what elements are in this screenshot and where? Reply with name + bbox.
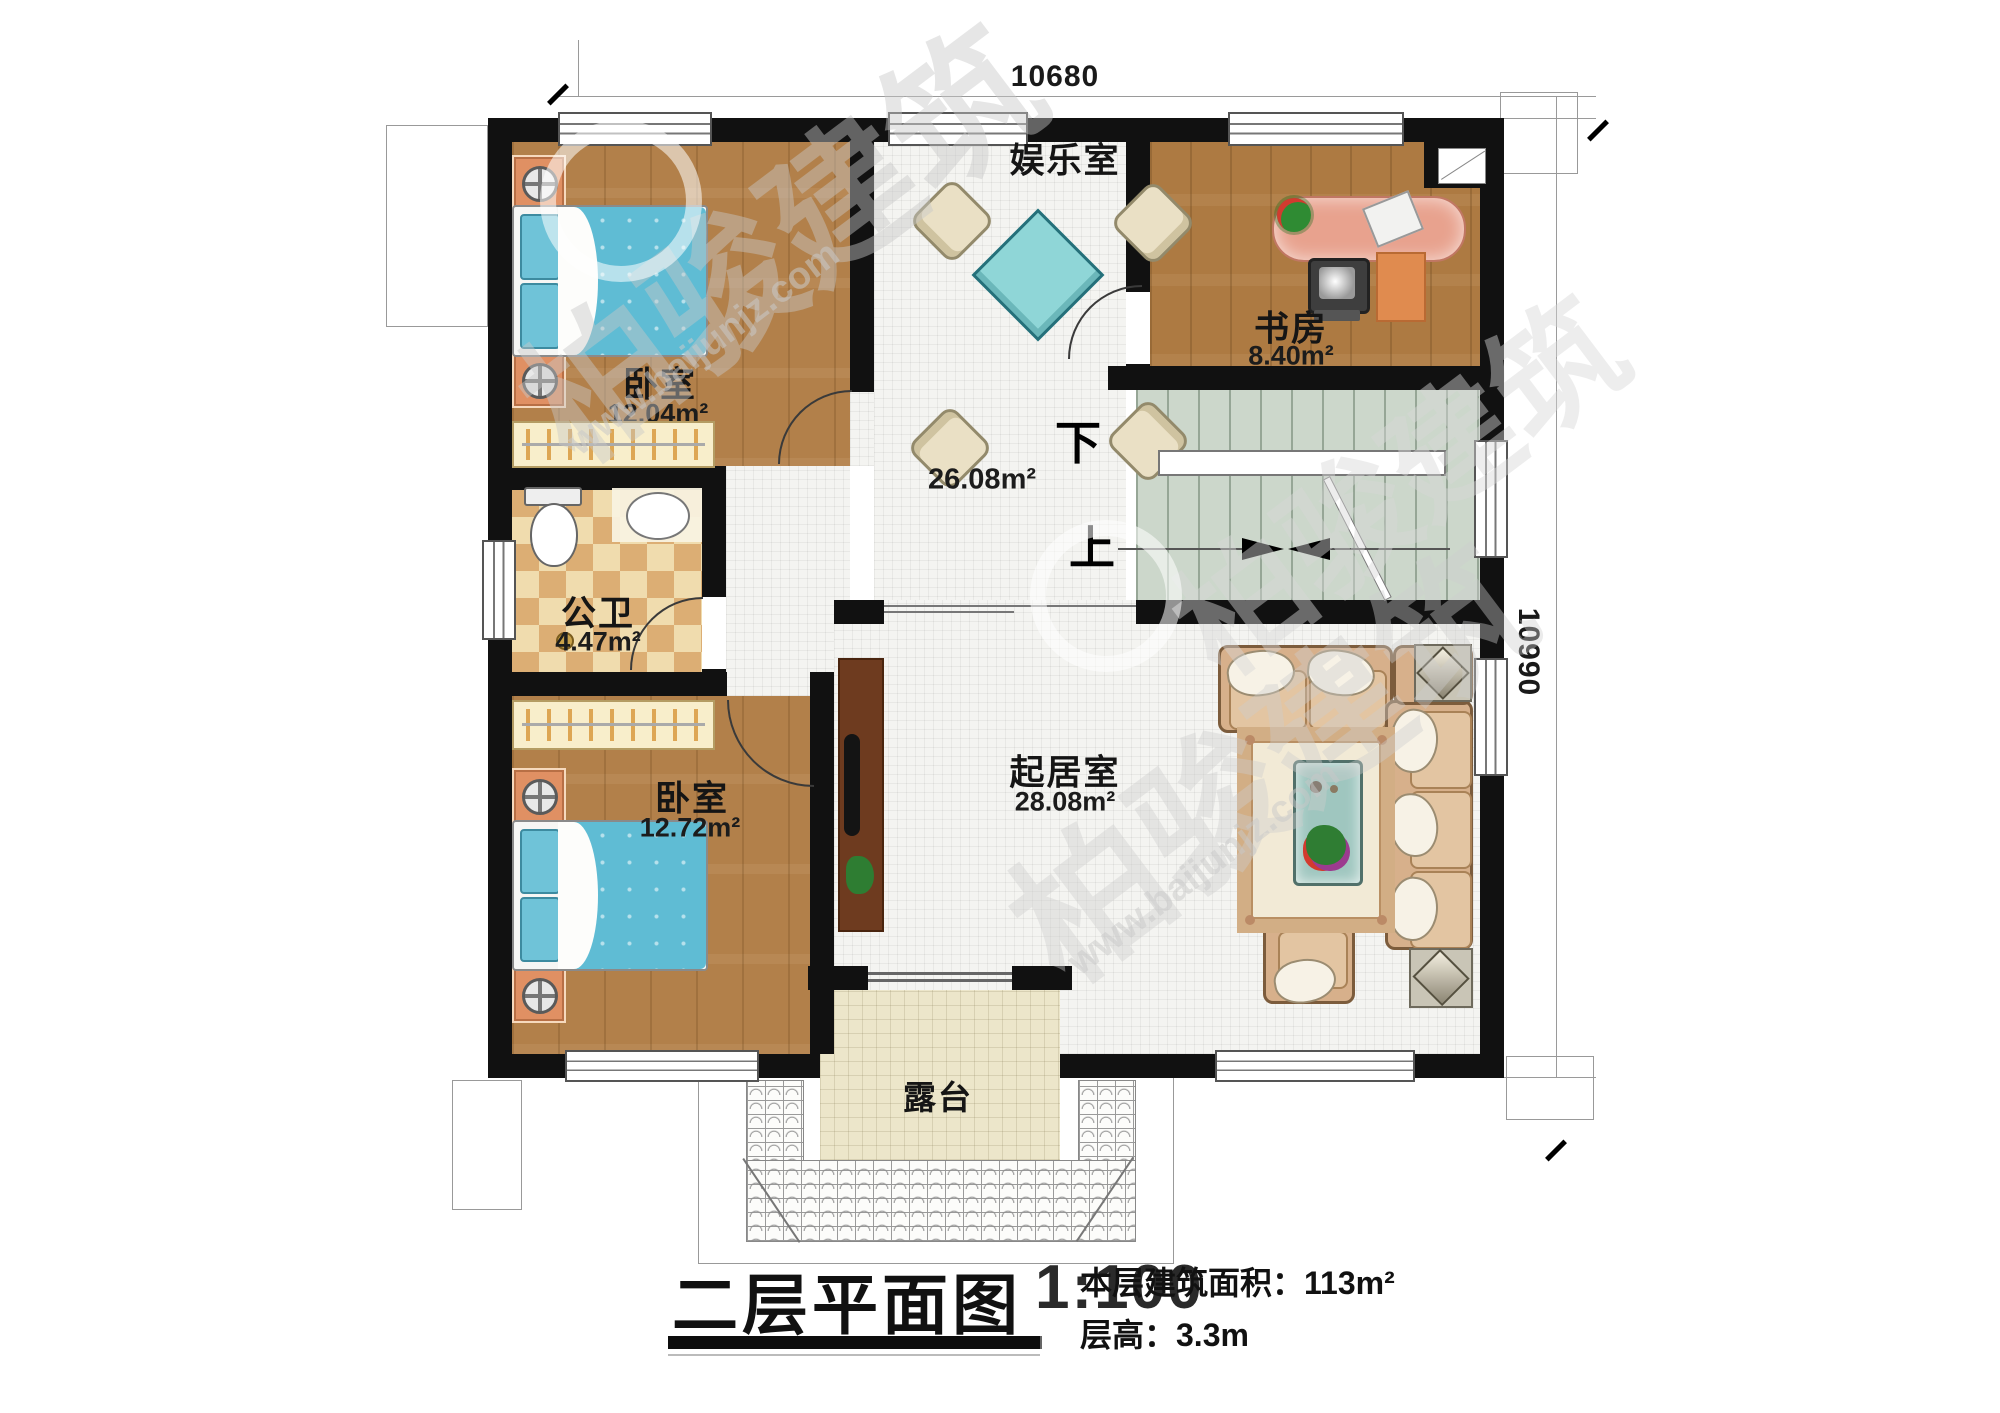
eave-outline xyxy=(386,125,488,327)
side-table-lamp xyxy=(1409,948,1473,1008)
title-underline-thin xyxy=(668,1354,1040,1356)
wall-terrace-stub-right xyxy=(1012,966,1072,990)
tv-cabinet xyxy=(838,658,884,932)
door-gap-floor xyxy=(850,392,874,466)
window-study-top xyxy=(1228,112,1404,146)
eave-outline xyxy=(1500,92,1578,174)
plant xyxy=(1277,198,1311,232)
sofa-two-seat xyxy=(1218,645,1393,733)
eave-outline xyxy=(452,1080,522,1210)
nightstand xyxy=(512,155,566,211)
floor-plan-page: 10680 10990 xyxy=(0,0,2000,1413)
dimension-line-top xyxy=(556,96,1596,97)
side-table-lamp xyxy=(1414,644,1472,702)
window-hall-top xyxy=(888,112,1028,146)
sink xyxy=(626,492,690,540)
desk-return xyxy=(1376,252,1426,322)
window-living-right xyxy=(1474,658,1508,776)
corridor-floor xyxy=(726,466,850,696)
armchair xyxy=(1263,922,1355,1004)
hall-living-divider xyxy=(884,611,1014,613)
plan-title: 二层平面图 xyxy=(672,1252,1022,1348)
roof-tiles-bottom xyxy=(746,1160,1136,1242)
bed-top xyxy=(512,205,708,357)
stair-break-arrow-left xyxy=(1288,538,1330,560)
living-area: 28.08m² xyxy=(1015,787,1116,818)
eave-outline xyxy=(1506,1056,1594,1120)
wall-bathroom-right-a xyxy=(702,466,726,597)
stair-down-label: 下 xyxy=(1055,407,1101,473)
terrace-sliding-door xyxy=(868,972,1012,975)
wall-hall-living-stub xyxy=(834,600,884,624)
window-living-bottom xyxy=(1215,1050,1415,1082)
wall-bathroom-bedroom2 xyxy=(488,672,727,696)
nightstand xyxy=(512,768,566,824)
wardrobe-bottom xyxy=(512,700,715,750)
stair-handrail xyxy=(1158,450,1446,476)
dimension-tick xyxy=(1545,1140,1567,1162)
window-bathroom-left xyxy=(482,540,516,640)
stair-direction-line xyxy=(1330,548,1450,550)
wall-terrace-stub-left xyxy=(808,966,868,990)
dimension-tick xyxy=(547,84,569,106)
extension-line xyxy=(578,40,579,96)
dimension-line-right xyxy=(1556,96,1557,1078)
dimension-right-value: 10990 xyxy=(1511,592,1545,712)
dimension-tick xyxy=(1587,120,1609,142)
window-bedroom-top xyxy=(558,112,712,146)
nightstand xyxy=(512,352,566,408)
hall-area: 26.08m² xyxy=(928,464,1036,497)
stair-break-arrow-right xyxy=(1242,538,1284,560)
sofa-three-seat xyxy=(1385,700,1473,950)
bathroom-area: 4.47m² xyxy=(555,627,641,658)
coffee-table xyxy=(1293,760,1363,886)
nightstand xyxy=(512,967,566,1023)
flue-shaft xyxy=(1438,148,1486,184)
wardrobe-top xyxy=(512,421,715,468)
toilet xyxy=(530,503,578,567)
study-area: 8.40m² xyxy=(1248,341,1334,372)
window-bedroom-bottom xyxy=(565,1050,759,1082)
stair-up-label: 上 xyxy=(1069,512,1115,578)
entertainment-name: 娱乐室 xyxy=(1009,133,1120,184)
stair-direction-line xyxy=(1118,548,1242,550)
stairwell-floor xyxy=(1136,390,1480,600)
floor-area-line: 本层建筑面积：113m² xyxy=(1080,1258,1395,1304)
window-stairs-right xyxy=(1474,440,1508,558)
floor-height-line: 层高：3.3m xyxy=(1080,1310,1249,1356)
terrace-sliding-door xyxy=(868,979,1012,982)
wall-right xyxy=(1480,118,1504,1054)
terrace-name: 露台 xyxy=(903,1071,973,1119)
title-underline xyxy=(668,1336,1040,1349)
wall-stairs-bottom xyxy=(1136,600,1504,624)
wall-bedroom-top-right xyxy=(850,118,874,392)
hall-living-divider xyxy=(884,605,1136,607)
bedroom-bottom-area: 12.72m² xyxy=(640,813,741,844)
wall-bedroom-bathroom xyxy=(488,466,726,490)
dimension-top-value: 10680 xyxy=(1000,60,1110,94)
